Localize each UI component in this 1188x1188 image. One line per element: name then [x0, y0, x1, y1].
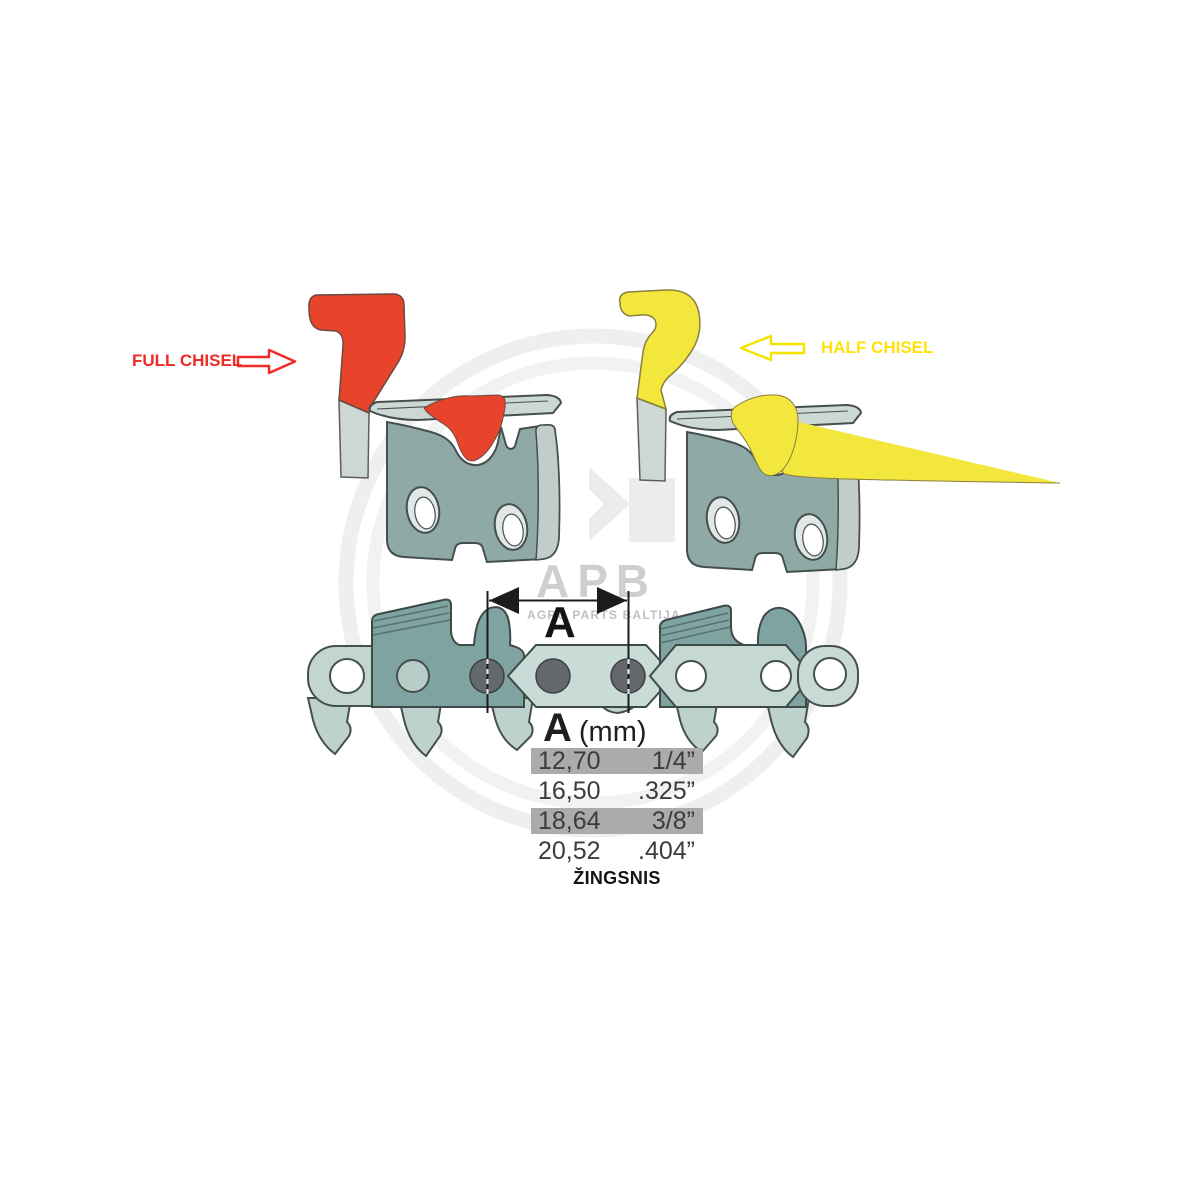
pitch-header-letter: A [543, 706, 572, 751]
strap-hole [761, 661, 791, 691]
half-chisel-link [670, 395, 1060, 572]
strap-hole [330, 659, 364, 693]
pitch-mm-value: 20,52 [538, 837, 601, 866]
chain-cutter-left [372, 600, 524, 707]
full-chisel-cutter-shape [309, 294, 405, 413]
pitch-inch-value: 3/8” [652, 807, 695, 836]
strap-hole [676, 661, 706, 691]
table-row: 12,70 1/4” [531, 748, 703, 774]
chainsaw-chain-pitch-diagram: APB AGRO PARTS BALTIJA [0, 0, 1188, 1188]
half-chisel-shank [637, 398, 666, 481]
pitch-header-unit: (mm) [579, 716, 647, 749]
strap-hole [814, 658, 846, 690]
dimension-label: A [544, 601, 576, 645]
pitch-inch-value: .404” [638, 837, 695, 866]
full-chisel-arrow-icon [238, 350, 295, 373]
pitch-table-header: A (mm) [543, 706, 703, 748]
diagram-artwork [0, 0, 1188, 1188]
cutter-hole [397, 660, 429, 692]
watermark-block [629, 478, 675, 542]
pitch-mm-value: 12,70 [538, 747, 601, 776]
watermark-arrow-icon [589, 467, 630, 541]
pitch-mm-value: 18,64 [538, 807, 601, 836]
chain-rivet [536, 659, 570, 693]
pitch-caption: ŽINGSNIS [531, 868, 703, 889]
full-chisel-label: FULL CHISEL [132, 352, 242, 369]
pitch-inch-value: 1/4” [652, 747, 695, 776]
table-row: 16,50 .325” [531, 778, 703, 804]
half-chisel-cutting-edge [731, 395, 1060, 483]
link-side-face [536, 425, 560, 560]
table-row: 18,64 3/8” [531, 808, 703, 834]
half-chisel-arrow-icon [741, 336, 804, 360]
pitch-inch-value: .325” [638, 777, 695, 806]
pitch-mm-value: 16,50 [538, 777, 601, 806]
pitch-table: A (mm) 12,70 1/4” 16,50 .325” 18,64 3/8”… [531, 706, 703, 889]
half-chisel-label: HALF CHISEL [821, 339, 933, 356]
table-row: 20,52 .404” [531, 838, 703, 864]
dimension-arrow-right-icon [597, 587, 627, 614]
